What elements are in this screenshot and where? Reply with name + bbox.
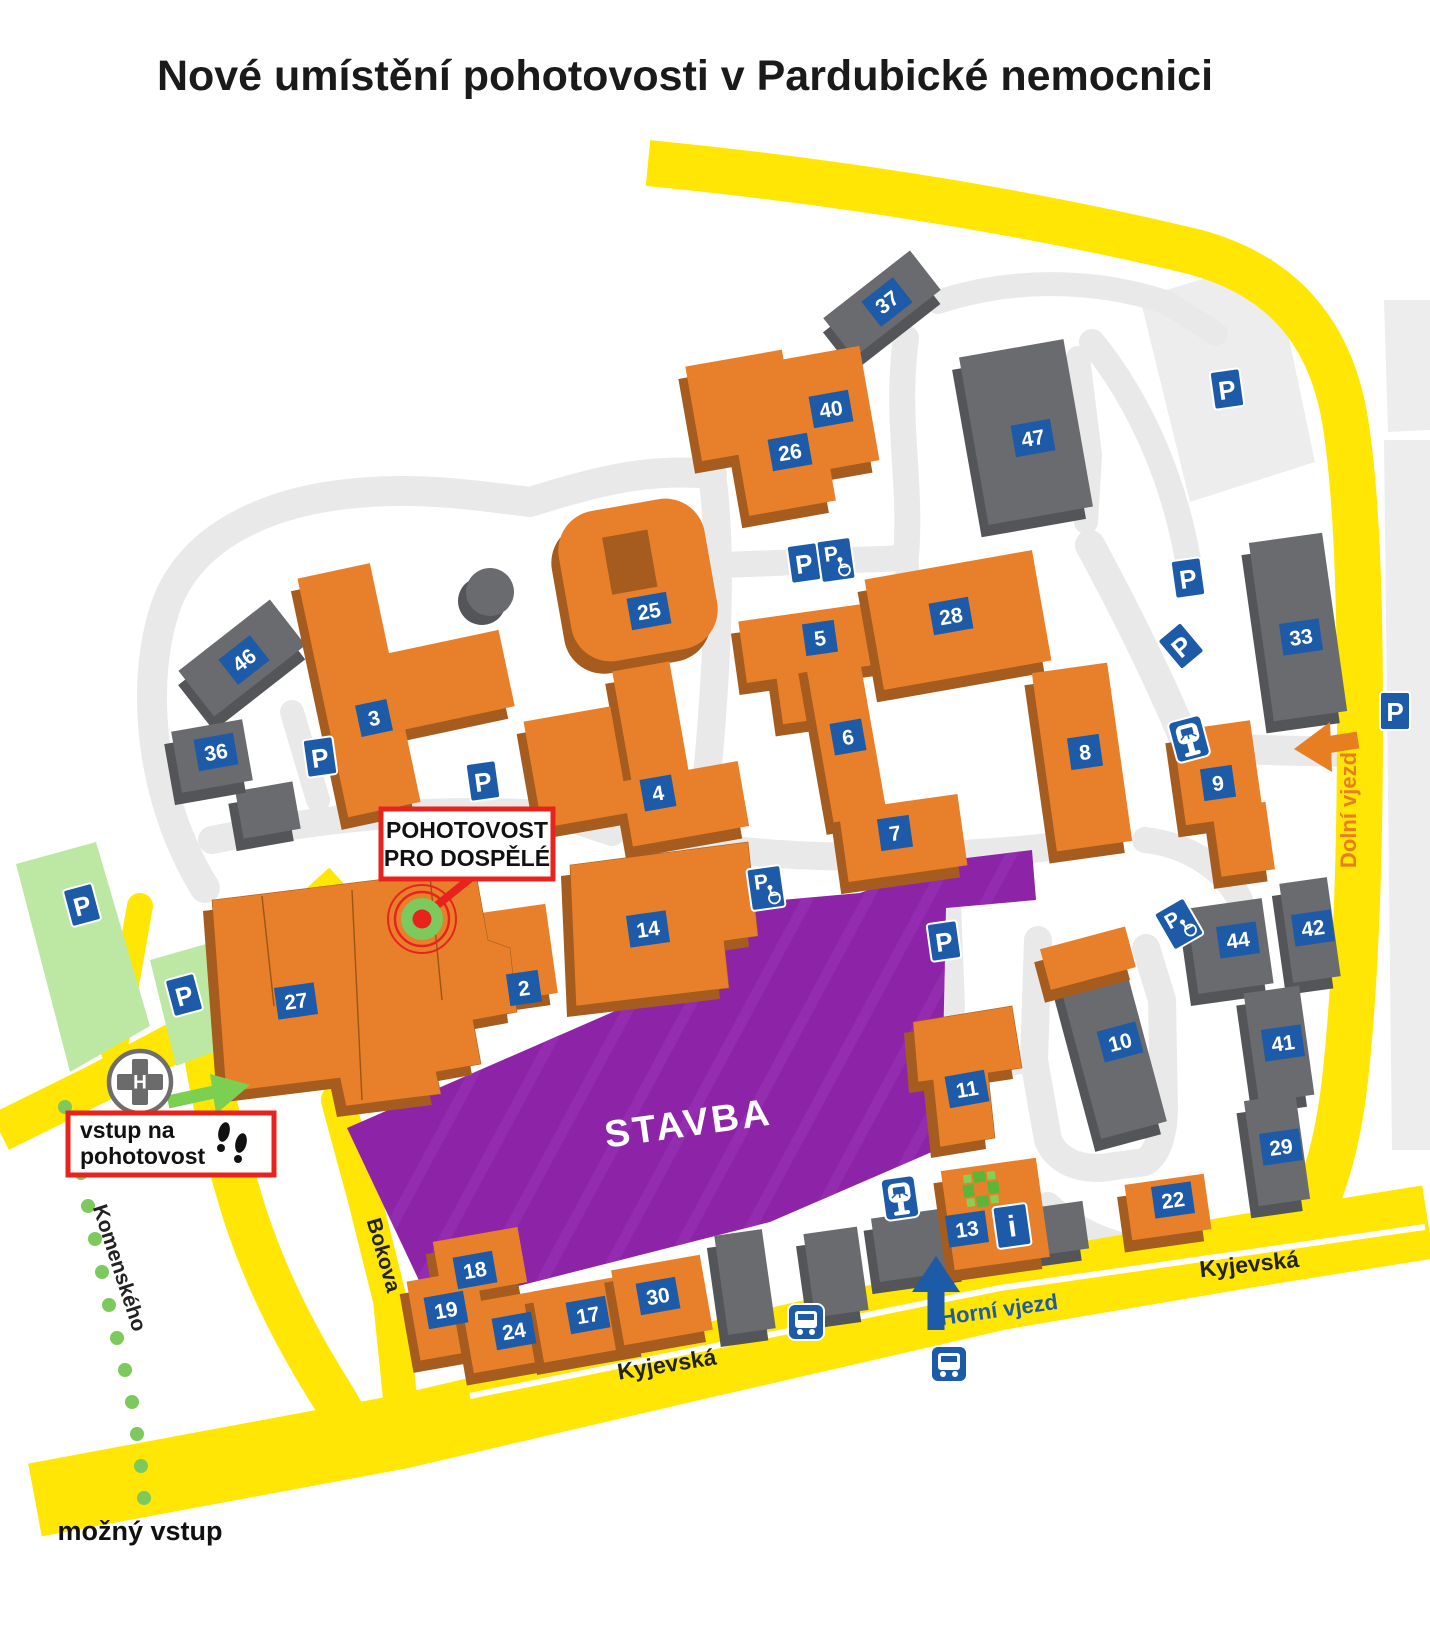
building-badge-18: 18 [453, 1251, 498, 1289]
building-badge-8: 8 [1067, 734, 1103, 770]
svg-text:30: 30 [645, 1284, 672, 1311]
svg-text:22: 22 [1160, 1188, 1186, 1214]
svg-text:17: 17 [575, 1303, 602, 1330]
building-badge-33: 33 [1279, 618, 1323, 655]
svg-text:29: 29 [1268, 1135, 1294, 1161]
bus-stop-icon [931, 1346, 967, 1382]
svg-text:P: P [1386, 697, 1403, 727]
svg-text:27: 27 [283, 989, 309, 1015]
hospital-icon: H [109, 1051, 171, 1113]
parking-icon: P [303, 736, 338, 778]
svg-text:18: 18 [462, 1258, 489, 1285]
building-badge-2: 2 [506, 970, 542, 1006]
building-badge-5: 5 [802, 620, 838, 656]
parking-meter-icon [880, 1175, 920, 1221]
building-badge-11: 11 [945, 1070, 990, 1108]
svg-text:24: 24 [501, 1319, 528, 1346]
entrance-callout-line2: pohotovost [80, 1143, 206, 1169]
building-badge-41: 41 [1261, 1024, 1305, 1061]
parking-icon: P [927, 920, 962, 962]
parking-icon: P [1210, 368, 1245, 410]
building-badge-22: 22 [1151, 1181, 1195, 1218]
svg-text:14: 14 [635, 917, 662, 943]
building-badge-7: 7 [877, 815, 913, 851]
building-badge-17: 17 [566, 1296, 611, 1334]
svg-text:26: 26 [777, 440, 804, 467]
building-badge-3: 3 [355, 699, 393, 737]
svg-text:25: 25 [636, 599, 663, 626]
building-badge-14: 14 [626, 910, 670, 947]
building-badge-13: 13 [945, 1210, 989, 1247]
emergency-callout: POHOTOVOST PRO DOSPĚLÉ [381, 809, 553, 879]
svg-text:47: 47 [1020, 426, 1047, 453]
building-badge-25: 25 [627, 592, 672, 630]
parking-icon: P [1380, 692, 1410, 730]
street-label-dolnvjezd: Dolní vjezd [1336, 752, 1361, 868]
svg-text:40: 40 [818, 397, 845, 424]
svg-text:11: 11 [954, 1077, 980, 1104]
svg-text:13: 13 [954, 1217, 980, 1243]
svg-text:33: 33 [1288, 625, 1314, 651]
disabled-parking-icon: P [746, 865, 786, 911]
entrance-callout-line1: vstup na [80, 1117, 175, 1143]
building-badge-24: 24 [492, 1312, 537, 1350]
page-title: Nové umístění pohotovosti v Pardubické n… [157, 52, 1213, 100]
building-badge-27: 27 [274, 982, 318, 1019]
svg-text:19: 19 [433, 1298, 460, 1325]
building-badge-9: 9 [1200, 765, 1236, 801]
building-badge-47: 47 [1011, 419, 1056, 457]
bus-stop-icon [788, 1304, 824, 1340]
svg-text:41: 41 [1270, 1031, 1297, 1057]
building-badge-36: 36 [194, 733, 239, 771]
svg-text:H: H [133, 1073, 147, 1094]
emergency-callout-line2: PRO DOSPĚLÉ [384, 844, 550, 871]
svg-text:28: 28 [938, 604, 965, 631]
entrance-callout: vstup na pohotovost [68, 1113, 274, 1175]
emergency-callout-line1: POHOTOVOST [386, 817, 548, 843]
building-badge-44: 44 [1216, 921, 1260, 958]
hospital-h-icon: H [109, 1051, 171, 1113]
hospital-map: Nové umístění pohotovosti v Pardubické n… [0, 0, 1430, 1639]
building-badge-19: 19 [424, 1291, 469, 1329]
svg-text:44: 44 [1225, 928, 1252, 954]
parking-icon: P [1171, 557, 1206, 599]
building-badge-28: 28 [929, 597, 974, 635]
building-badge-30: 30 [636, 1277, 681, 1315]
disabled-parking-icon: P [816, 537, 856, 583]
svg-text:42: 42 [1300, 916, 1326, 942]
building-badge-6: 6 [829, 718, 866, 755]
possible-entrance-label: možný vstup [57, 1516, 222, 1546]
building-badge-26: 26 [768, 433, 813, 471]
parking-icon: P [466, 760, 501, 802]
building-badge-42: 42 [1291, 909, 1335, 946]
svg-text:36: 36 [203, 740, 230, 767]
building-badge-4: 4 [639, 774, 676, 811]
building-badge-40: 40 [809, 390, 854, 428]
building-badge-29: 29 [1259, 1128, 1303, 1165]
info-icon: i [992, 1203, 1032, 1249]
